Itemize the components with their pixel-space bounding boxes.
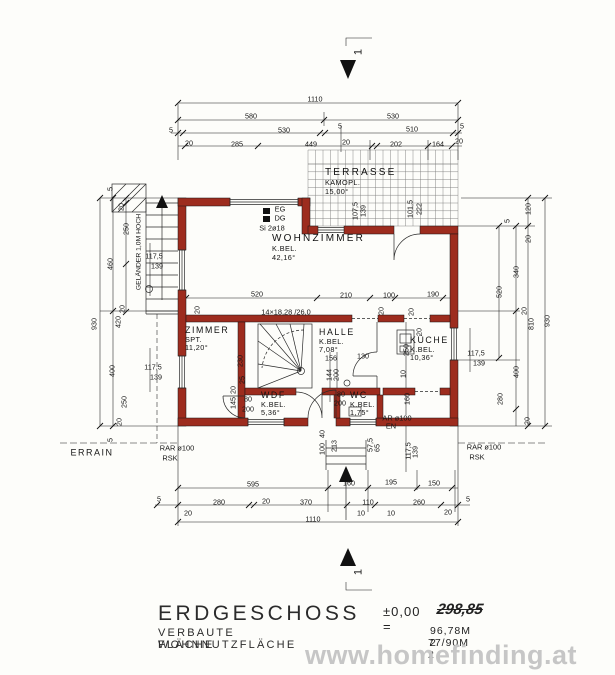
dimension-label: 5 bbox=[169, 126, 173, 133]
annotation-label: EN bbox=[386, 422, 396, 429]
room-label-kche: KÜCHEK.BEL.10,36° bbox=[410, 335, 449, 363]
dimension-label: 20 bbox=[524, 235, 531, 243]
dimension-label: 25 bbox=[238, 376, 245, 384]
dimension-label: 20 bbox=[342, 138, 350, 145]
annotation-label: Si 2ø18 bbox=[259, 224, 284, 231]
dimension-label: 1110 bbox=[308, 95, 323, 102]
dimension-label: 280 bbox=[496, 393, 503, 405]
dimension-label: 260 bbox=[413, 498, 425, 505]
dimension-label: 400 bbox=[512, 366, 519, 378]
dimension-label: 195 bbox=[385, 478, 397, 485]
dimension-label: 20 bbox=[229, 386, 236, 394]
dimension-label: 5 bbox=[106, 187, 113, 191]
dimension-label: 117,5 bbox=[144, 363, 161, 370]
room-label-wdf: WDFK.BEL.5,36° bbox=[261, 390, 286, 418]
dimension-label: 250 bbox=[402, 344, 409, 356]
dimension-label: 580 bbox=[245, 112, 257, 119]
dimension-label: 5 bbox=[503, 219, 510, 223]
dimension-label: 139 bbox=[150, 373, 162, 380]
label-layer: 1110580530553055105202854492020216420107… bbox=[0, 0, 615, 675]
dimension-label: 150 bbox=[428, 479, 440, 486]
dimension-label: 101,5 bbox=[406, 200, 413, 218]
dimension-label: 400 bbox=[108, 365, 115, 377]
living-area-label: WOHNNUTZFLÄCHE bbox=[158, 639, 296, 651]
annotation-label: ERRAIN bbox=[70, 449, 113, 458]
dimension-label: 230 bbox=[236, 355, 243, 367]
dimension-label: 5 bbox=[106, 438, 113, 442]
dimension-label: 156 bbox=[325, 354, 337, 361]
dimension-label: 1110 bbox=[306, 515, 321, 522]
dimension-label: 164 bbox=[432, 140, 444, 147]
dimension-label: 190 bbox=[427, 290, 439, 297]
dimension-label: 530 bbox=[387, 112, 399, 119]
watermark: www.homefinding.at bbox=[305, 640, 577, 671]
dimension-label: 20 bbox=[193, 306, 200, 314]
dimension-label: 449 bbox=[305, 140, 317, 147]
dimension-label: 139 bbox=[473, 359, 485, 366]
annotation-label: RAR ø100 bbox=[160, 444, 195, 451]
dimension-label: 160 bbox=[343, 479, 355, 486]
dimension-label: 20 bbox=[377, 307, 384, 315]
section-mark-label: 1 bbox=[354, 49, 365, 55]
dimension-label: 100 bbox=[318, 443, 325, 455]
annotation-label: GELÄNDER 1,0M HOCH bbox=[137, 214, 144, 290]
dimension-label: 65 bbox=[373, 444, 380, 452]
dimension-label: 130 bbox=[357, 352, 369, 359]
dimension-label: 340 bbox=[512, 266, 519, 278]
dimension-label: 222 bbox=[415, 203, 422, 215]
annotation-label: DG bbox=[274, 214, 285, 221]
room-label-wohnzimmer: WOHNZIMMERK.BEL.42,16° bbox=[272, 233, 365, 263]
dimension-label: 20 bbox=[185, 139, 193, 146]
dimension-label: 250 bbox=[122, 223, 129, 235]
room-label-wc: WCK.BEL.1,75° bbox=[350, 390, 375, 418]
dimension-label: 200 bbox=[332, 369, 339, 381]
dimension-label: 200 bbox=[334, 399, 346, 406]
dimension-label: 145 bbox=[229, 397, 236, 409]
dimension-label: 213 bbox=[330, 440, 337, 452]
elevation-label: ±0,00 = bbox=[383, 604, 420, 634]
dimension-label: 20 bbox=[523, 417, 530, 425]
dimension-label: 200 bbox=[242, 405, 254, 412]
dimension-label: 80 bbox=[337, 390, 345, 397]
dimension-label: 250 bbox=[120, 396, 127, 408]
room-label-halle: HALLEK.BEL.7,08° bbox=[319, 327, 355, 355]
dimension-label: 520 bbox=[495, 286, 502, 298]
dimension-label: 10 bbox=[399, 370, 406, 378]
dimension-label: 370 bbox=[300, 498, 312, 505]
annotation-label: EG bbox=[275, 205, 286, 212]
dimension-label: 120 bbox=[524, 203, 531, 215]
dimension-label: 5 bbox=[338, 122, 342, 129]
floor-title: ERDGESCHOSS bbox=[158, 602, 360, 626]
dimension-label: 100 bbox=[383, 291, 395, 298]
dimension-label: 280 bbox=[213, 498, 225, 505]
dimension-label: 139 bbox=[411, 446, 418, 458]
section-mark-label: 1 bbox=[354, 569, 365, 575]
dimension-label: 460 bbox=[106, 258, 113, 270]
annotation-label: RSK bbox=[469, 453, 484, 460]
dimension-label: 139 bbox=[151, 262, 163, 269]
dimension-label: 285 bbox=[231, 140, 243, 147]
dimension-label: 20 bbox=[117, 203, 124, 211]
dimension-label: 10 bbox=[387, 509, 395, 516]
dimension-label: 530 bbox=[278, 126, 290, 133]
dimension-label: 930 bbox=[90, 318, 97, 330]
dimension-label: 20 bbox=[520, 307, 527, 315]
dimension-label: 40 bbox=[318, 430, 325, 438]
dimension-label: 117,5 bbox=[145, 252, 162, 259]
dimension-label: 80 bbox=[244, 395, 252, 402]
dimension-label: 20 bbox=[115, 418, 122, 426]
dimension-label: 110 bbox=[362, 498, 373, 505]
dimension-label: 5 bbox=[157, 495, 161, 502]
dimension-label: 20 bbox=[118, 305, 125, 313]
dimension-label: 210 bbox=[340, 291, 352, 298]
dimension-label: 20 bbox=[407, 308, 414, 316]
dimension-label: 20 bbox=[444, 508, 452, 515]
annotation-label: RSK bbox=[162, 454, 177, 461]
dimension-label: 595 bbox=[247, 480, 259, 487]
annotation-label: 14×18,28 /26,0 bbox=[261, 308, 311, 315]
room-label-zimmer: ZIMMERSPT.11,20° bbox=[185, 325, 229, 353]
dimension-label: 420 bbox=[114, 316, 121, 328]
elevation-handwritten-value: 298,85 bbox=[436, 601, 485, 618]
dimension-label: 520 bbox=[251, 290, 263, 297]
annotation-label: RAR ø100 bbox=[467, 443, 502, 450]
dimension-label: 20 bbox=[184, 509, 192, 516]
dimension-label: 5 bbox=[466, 495, 470, 502]
dimension-label: 20 bbox=[262, 497, 270, 504]
dimension-label: 10 bbox=[357, 509, 365, 516]
dimension-label: 510 bbox=[406, 125, 418, 132]
dimension-label: 202 bbox=[390, 140, 402, 147]
room-label-terrasse: TERRASSEKAMOPL.15,00° bbox=[325, 167, 397, 197]
dimension-label: 117,5 bbox=[467, 349, 484, 356]
dimension-label: 930 bbox=[543, 315, 550, 327]
dimension-label: 20 bbox=[455, 137, 463, 144]
floor-plan-sheet: 1110580530553055105202854492020216420107… bbox=[0, 0, 615, 675]
dimension-label: 160 bbox=[403, 393, 410, 405]
dimension-label: 139 bbox=[359, 205, 366, 217]
dimension-label: 810 bbox=[527, 318, 534, 330]
dimension-label: 5 bbox=[460, 122, 464, 129]
